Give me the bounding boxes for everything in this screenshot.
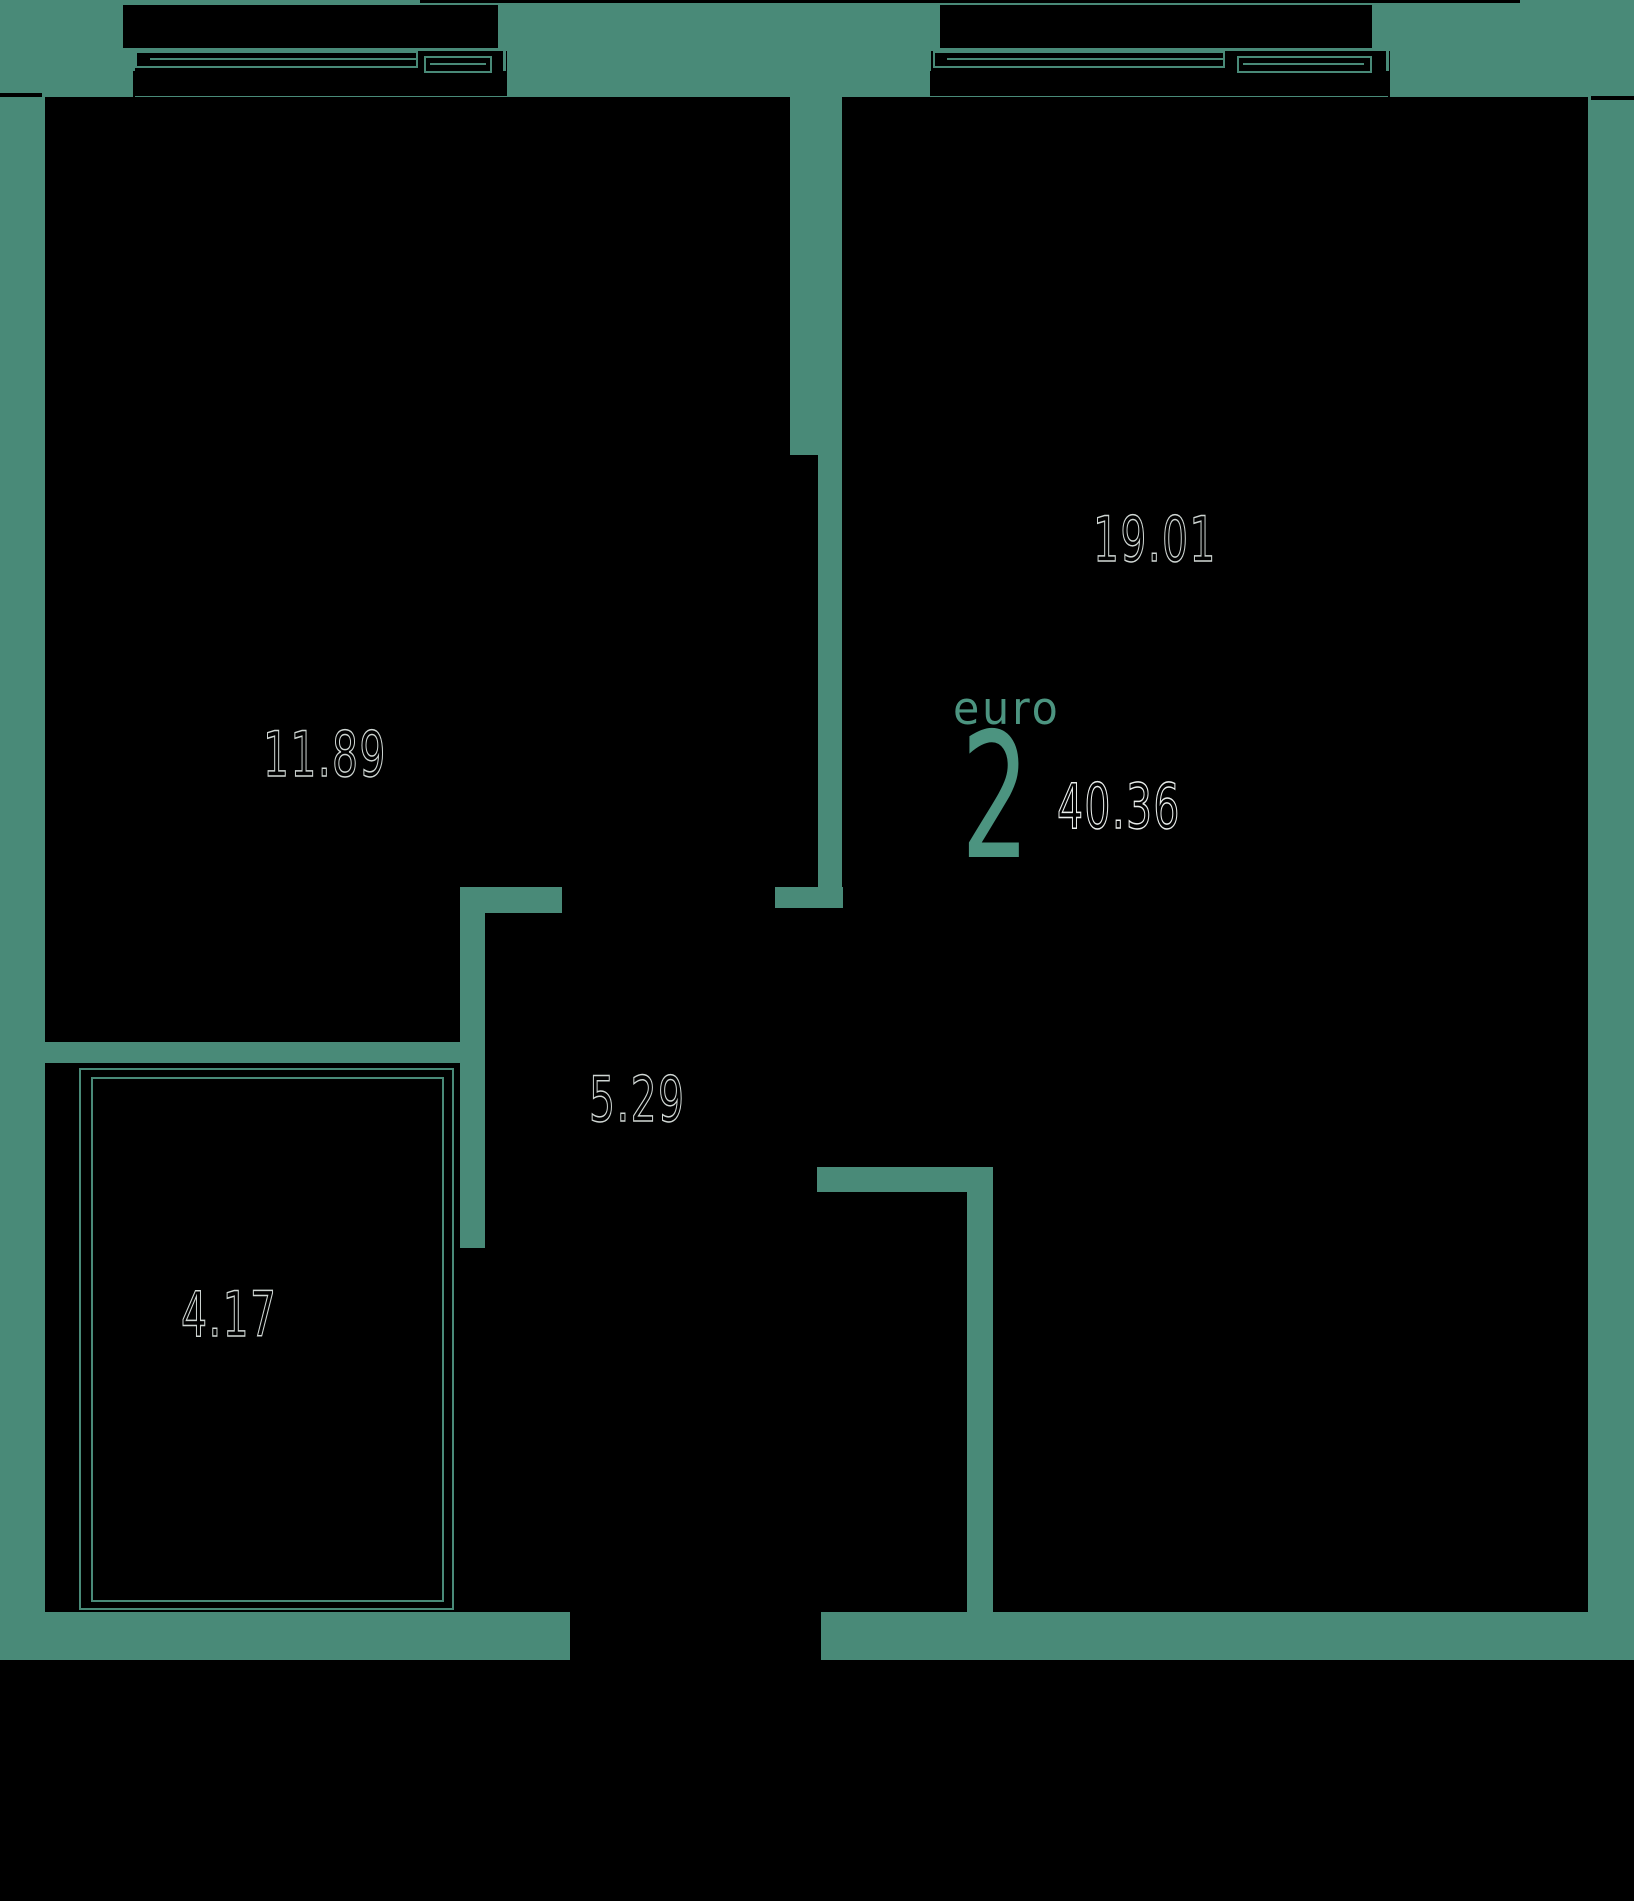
balcony-right: [940, 5, 1372, 48]
total-area-label: 40.36: [1057, 776, 1181, 838]
window-left-end-bracket-b: [503, 49, 506, 71]
area-label-bathroom: 4.17: [181, 1284, 277, 1346]
wall-hall-living-vertical: [967, 1192, 993, 1617]
left-wall-tick: [0, 93, 42, 97]
window-left-sash-2-line: [430, 63, 486, 65]
window-right-end-bracket-a: [928, 49, 931, 71]
right-wall-tick: [1591, 96, 1634, 100]
wall-bedroom-hall: [485, 887, 562, 913]
area-label-bedroom: 11.89: [263, 724, 387, 786]
window-right-sash-2-line: [1243, 63, 1364, 65]
entrance-door-gap: [570, 1612, 821, 1660]
area-label-hallway: 5.29: [589, 1069, 685, 1131]
bottom-wall-gap-band: [45, 1612, 1634, 1660]
window-left-sash-1-line: [150, 58, 416, 60]
balcony-left: [123, 5, 498, 48]
window-left-end-bracket-a: [132, 49, 135, 71]
bottom-slab-band: [0, 1660, 1634, 1901]
wall-bedroom-living-lower: [818, 455, 842, 888]
floor-plan: 11.89 19.01 5.29 4.17 euro 2 40.36: [0, 0, 1634, 1901]
wall-foot-living-hall: [775, 887, 843, 908]
wall-bedroom-bathroom: [45, 1042, 460, 1063]
wall-hall-living-horizontal: [817, 1167, 993, 1192]
top-slab-line: [420, 0, 1520, 3]
area-label-living-kitchen: 19.01: [1093, 509, 1217, 571]
wall-bathroom-hall: [460, 887, 485, 1248]
rooms-count: 2: [961, 711, 1030, 885]
wall-bedroom-living-upper: [790, 97, 842, 455]
window-right-sash-1-line: [947, 58, 1223, 60]
window-right-end-bracket-b: [1386, 49, 1389, 71]
